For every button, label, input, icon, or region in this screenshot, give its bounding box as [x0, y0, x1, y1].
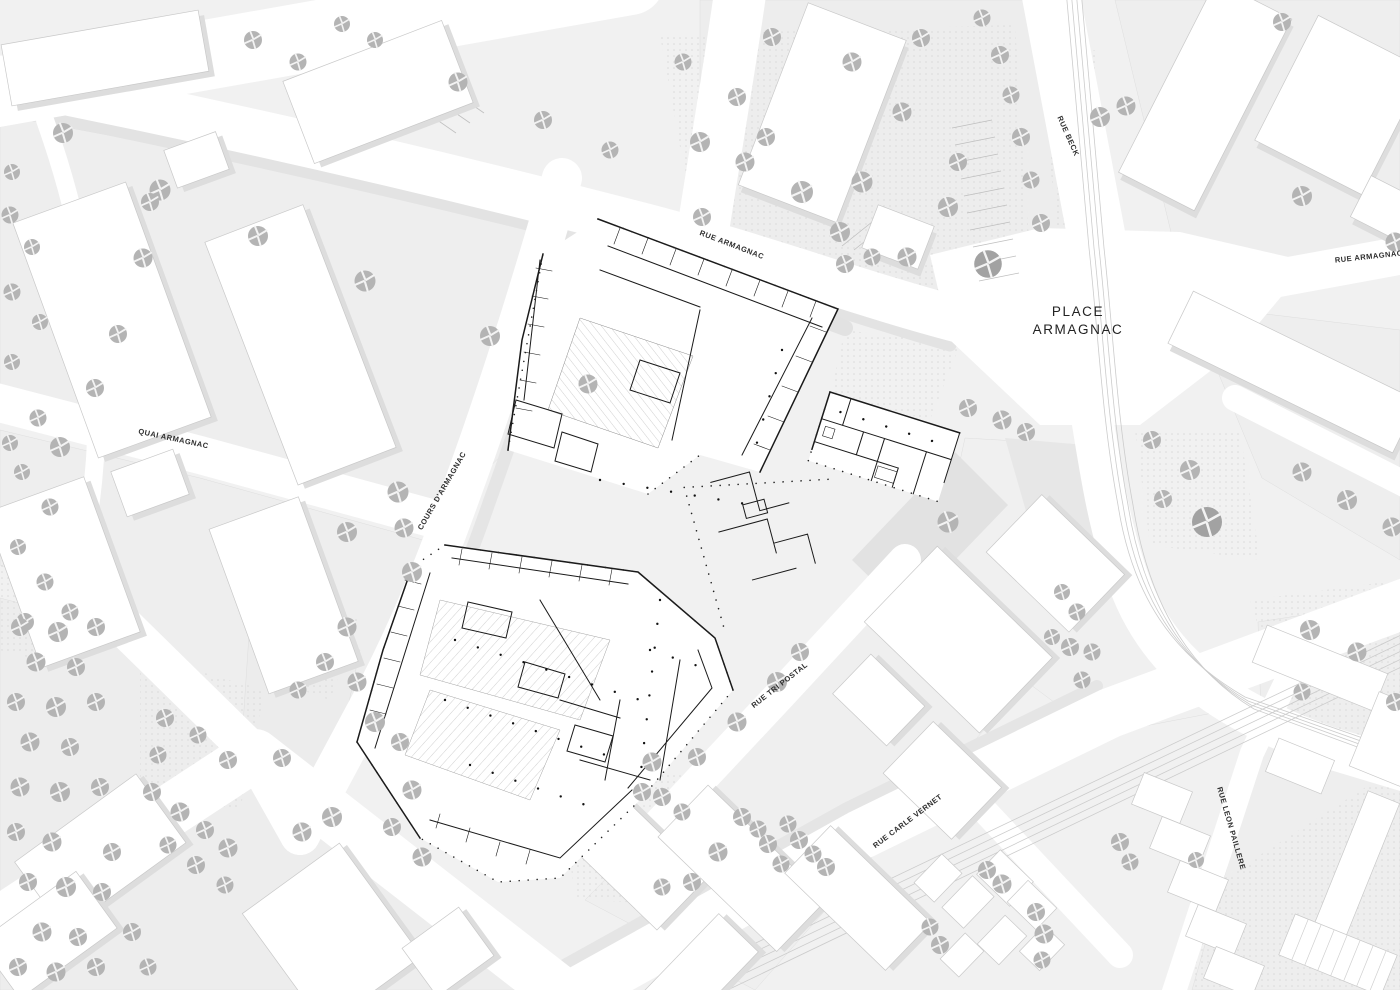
- place-name-line2: ARMAGNAC: [1033, 322, 1124, 337]
- place-name-line1: PLACE: [1052, 304, 1104, 319]
- site-plan-map: RUE BECK RUE ARMAGNAC RUE ARMAGNAC QUAI …: [0, 0, 1400, 990]
- site-plan-page: RUE BECK RUE ARMAGNAC RUE ARMAGNAC QUAI …: [0, 0, 1400, 990]
